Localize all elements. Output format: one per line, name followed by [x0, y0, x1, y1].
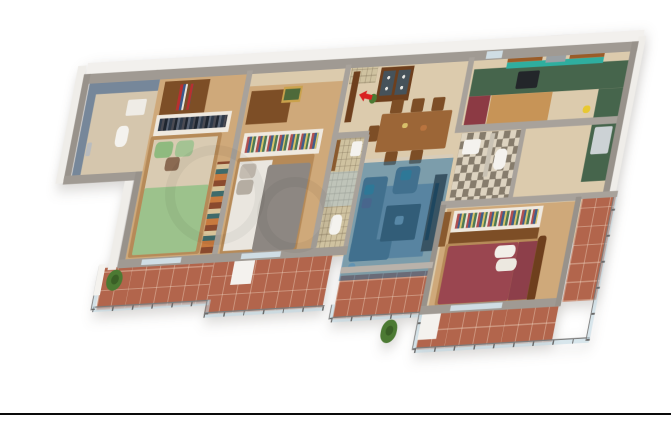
- floorplan-plane: [18, 50, 649, 422]
- bottom-border-line: [0, 413, 671, 415]
- hob-stove: [515, 70, 540, 89]
- wall-picture-art: [283, 88, 300, 100]
- washbasin-bathroom3: [462, 139, 482, 155]
- washbasin-bathroom1: [125, 99, 147, 116]
- window-kitchen-north: [486, 51, 503, 59]
- floorplan-render: [0, 0, 671, 422]
- dining-table: [375, 110, 453, 153]
